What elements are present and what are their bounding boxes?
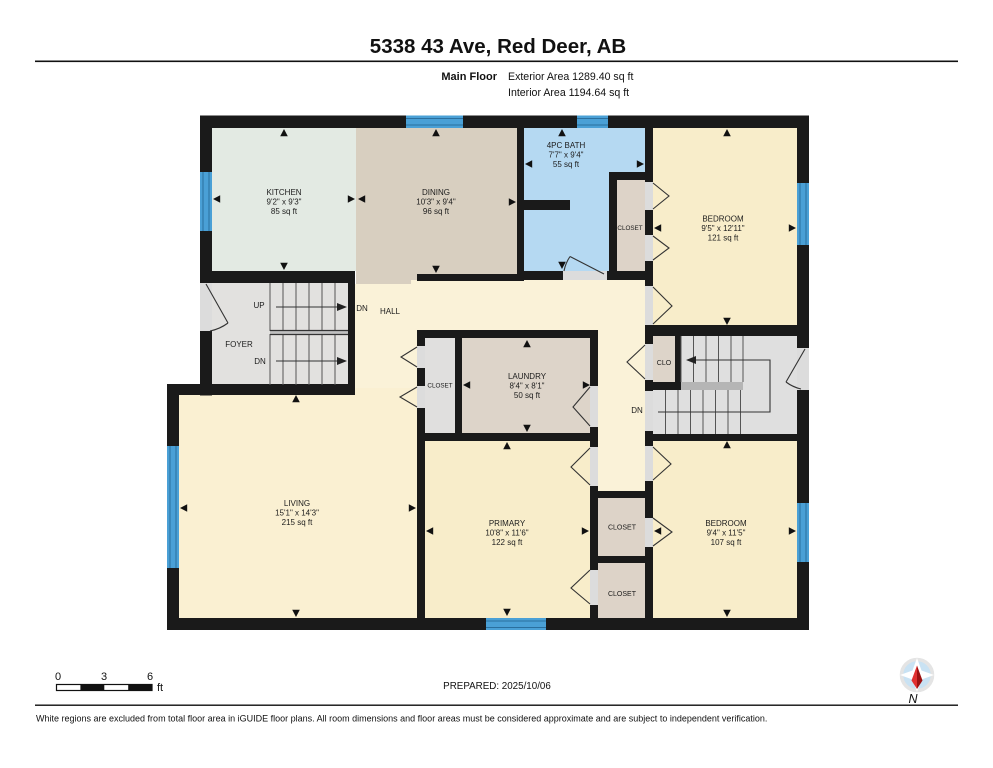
svg-text:DN: DN — [631, 406, 643, 415]
svg-text:HALL: HALL — [380, 307, 401, 316]
svg-text:121 sq ft: 121 sq ft — [708, 234, 739, 243]
svg-text:4PC BATH: 4PC BATH — [547, 141, 586, 150]
svg-text:3: 3 — [101, 671, 107, 683]
svg-text:N: N — [908, 692, 918, 706]
svg-text:DN: DN — [254, 357, 266, 366]
svg-text:0: 0 — [55, 671, 61, 683]
svg-text:White regions are excluded fro: White regions are excluded from total fl… — [36, 714, 767, 724]
svg-text:122 sq ft: 122 sq ft — [492, 538, 523, 547]
svg-text:CLOSET: CLOSET — [608, 591, 637, 598]
svg-text:96 sq ft: 96 sq ft — [423, 207, 450, 216]
svg-text:55 sq ft: 55 sq ft — [553, 160, 580, 169]
svg-text:KITCHEN: KITCHEN — [266, 188, 301, 197]
svg-text:9'5" x 12'11": 9'5" x 12'11" — [701, 224, 744, 233]
svg-text:9'2" x 9'3": 9'2" x 9'3" — [267, 198, 302, 207]
svg-text:7'7" x 9'4": 7'7" x 9'4" — [549, 151, 584, 160]
svg-text:UP: UP — [253, 301, 264, 310]
svg-text:10'3" x 9'4": 10'3" x 9'4" — [416, 198, 456, 207]
svg-text:Exterior Area 1289.40 sq ft: Exterior Area 1289.40 sq ft — [508, 71, 633, 83]
svg-text:ft: ft — [157, 682, 163, 694]
svg-text:6: 6 — [147, 671, 153, 683]
svg-text:LIVING: LIVING — [284, 499, 310, 508]
svg-text:LAUNDRY: LAUNDRY — [508, 372, 547, 381]
svg-text:PRIMARY: PRIMARY — [489, 519, 526, 528]
svg-text:15'1" x 14'3": 15'1" x 14'3" — [275, 509, 319, 518]
svg-text:CLOSET: CLOSET — [608, 525, 637, 532]
svg-text:PREPARED: 2025/10/06: PREPARED: 2025/10/06 — [443, 681, 551, 692]
svg-text:Main Floor: Main Floor — [441, 71, 497, 83]
svg-text:50 sq ft: 50 sq ft — [514, 391, 541, 400]
svg-text:85 sq ft: 85 sq ft — [271, 207, 298, 216]
svg-text:107 sq ft: 107 sq ft — [711, 538, 742, 547]
svg-text:215 sq ft: 215 sq ft — [282, 518, 313, 527]
svg-text:Interior Area 1194.64 sq ft: Interior Area 1194.64 sq ft — [508, 87, 629, 99]
svg-text:DN: DN — [356, 304, 368, 313]
svg-text:CLOSET: CLOSET — [427, 383, 452, 390]
svg-text:CLO: CLO — [657, 360, 672, 367]
svg-text:5338 43 Ave, Red Deer, AB: 5338 43 Ave, Red Deer, AB — [370, 35, 626, 58]
svg-text:10'8" x 11'6": 10'8" x 11'6" — [485, 529, 528, 538]
svg-text:BEDROOM: BEDROOM — [705, 519, 747, 528]
svg-text:8'4" x 8'1": 8'4" x 8'1" — [510, 382, 545, 391]
svg-text:9'4" x 11'5": 9'4" x 11'5" — [707, 529, 746, 538]
svg-text:BEDROOM: BEDROOM — [702, 215, 744, 224]
svg-text:CLOSET: CLOSET — [617, 225, 642, 232]
svg-text:DINING: DINING — [422, 188, 450, 197]
svg-text:FOYER: FOYER — [225, 340, 253, 349]
